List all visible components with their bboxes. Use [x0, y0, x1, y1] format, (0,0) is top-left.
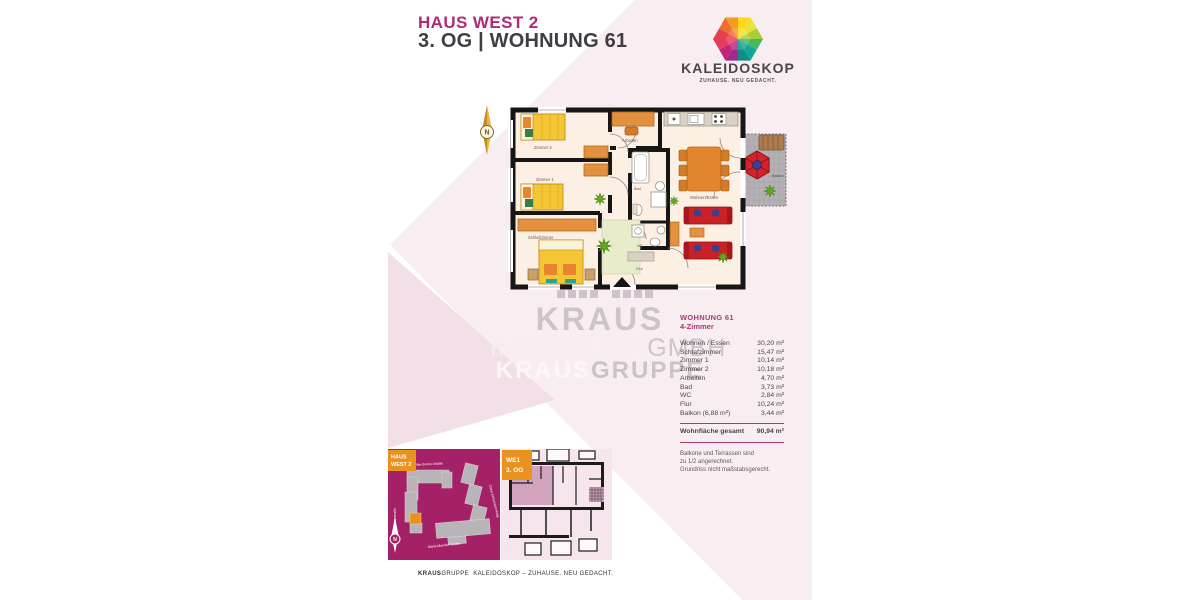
table-divider [680, 442, 784, 443]
kitchen-counter [664, 112, 738, 126]
area-table: WOHNUNG 61 4-Zimmer Wohnen / Essen30,20 … [680, 313, 784, 474]
table-row: Schlafzimmer15,47 m² [680, 349, 784, 358]
table-note: Balkone und Terrassen sind zu 1/2 angere… [680, 450, 784, 474]
room-label-zimmer2: Zimmer 2 [534, 145, 552, 150]
site-badge-line2: WEST 2 [391, 462, 411, 468]
kaleidoskop-logo-icon [711, 14, 765, 64]
svg-text:N: N [393, 537, 397, 543]
site-plan: Hilde-Domin-Straße Clara-Schumann-Weg Ma… [388, 449, 500, 560]
plant-icon [597, 239, 611, 253]
table-row: Balkon (6,88 m²)3,44 m² [680, 410, 784, 419]
coffee-table [690, 228, 704, 237]
table-row: Arbeiten4,70 m² [680, 375, 784, 384]
room-label-balkon: Balkon [772, 174, 784, 178]
footer-text: KALEIDOSKOP – ZUHAUSE. NEU GEDACHT. [473, 571, 613, 577]
table-row: WC2,84 m² [680, 392, 784, 401]
table-row: Zimmer 110,14 m² [680, 357, 784, 366]
bed-zimmer2 [521, 114, 565, 140]
area-table-title: WOHNUNG 61 [680, 313, 784, 322]
room-label-bad: Bad [634, 187, 641, 191]
overview-badge-line1: WE1 [506, 457, 520, 464]
page: HAUS WEST 2 3. OG | WOHNUNG 61 KALEIDOSK… [0, 0, 1200, 600]
site-badge-line1: HAUS [391, 455, 407, 461]
floor-plan: Balkon [505, 103, 795, 295]
closet [584, 164, 608, 176]
highlighted-building [410, 513, 421, 524]
balcony: Balkon [744, 134, 786, 206]
room-label-flur: Flur [636, 266, 644, 271]
sideboard [670, 222, 679, 246]
sofa [684, 207, 732, 224]
wardrobe [518, 219, 596, 231]
footer-brand-bold: KRAUS [418, 571, 441, 577]
table-row: Bad3,73 m² [680, 384, 784, 393]
table-row: Wohnen / Essen30,20 m² [680, 340, 784, 349]
table-row: Flur10,24 m² [680, 401, 784, 410]
compass-n-label: N [484, 130, 489, 137]
room-label-zimmer1: Zimmer 1 [536, 177, 554, 182]
overview-badge-line2: 3. OG [506, 467, 523, 474]
watermark-squares [557, 290, 653, 298]
logo-wordmark: KALEIDOSKOP [678, 60, 798, 76]
room-label-wc: WC [637, 244, 644, 248]
table-row: Zimmer 210,18 m² [680, 366, 784, 375]
north-compass-icon: N [474, 104, 500, 156]
footer-line: KRAUSGRUPPE KALEIDOSKOP – ZUHAUSE. NEU G… [418, 571, 613, 577]
closet [584, 146, 608, 158]
room-label-schlafzimmer: Schlafzimmer [528, 235, 554, 240]
plant-icon [717, 251, 729, 263]
watermark-kraus: KRAUS [500, 301, 700, 338]
area-table-subtitle: 4-Zimmer [680, 322, 784, 331]
bed-zimmer1 [521, 184, 563, 210]
logo-tagline: ZUHAUSE. NEU GEDACHT. [678, 78, 798, 84]
watermark-krausgruppe: KRAUSGRUPPE [490, 357, 710, 385]
lounger [759, 135, 784, 150]
hall-cabinet [628, 252, 654, 261]
room-label-wohnen-essen: Wohnen/Essen [690, 195, 719, 200]
dining-set [679, 147, 729, 191]
floor-overview-plan: WE1 3. OG [501, 449, 612, 560]
page-subtitle: 3. OG | WOHNUNG 61 [418, 30, 627, 53]
room-label-arbeiten: Arbeiten [622, 138, 638, 143]
floor-overview-badge [502, 450, 532, 480]
plant-icon [669, 196, 679, 206]
table-total-row: Wohnfläche gesamt90,94 m² [680, 428, 784, 437]
table-divider [680, 423, 784, 424]
plant-icon [594, 193, 606, 205]
footer-brand-rest: GRUPPE [441, 571, 469, 577]
